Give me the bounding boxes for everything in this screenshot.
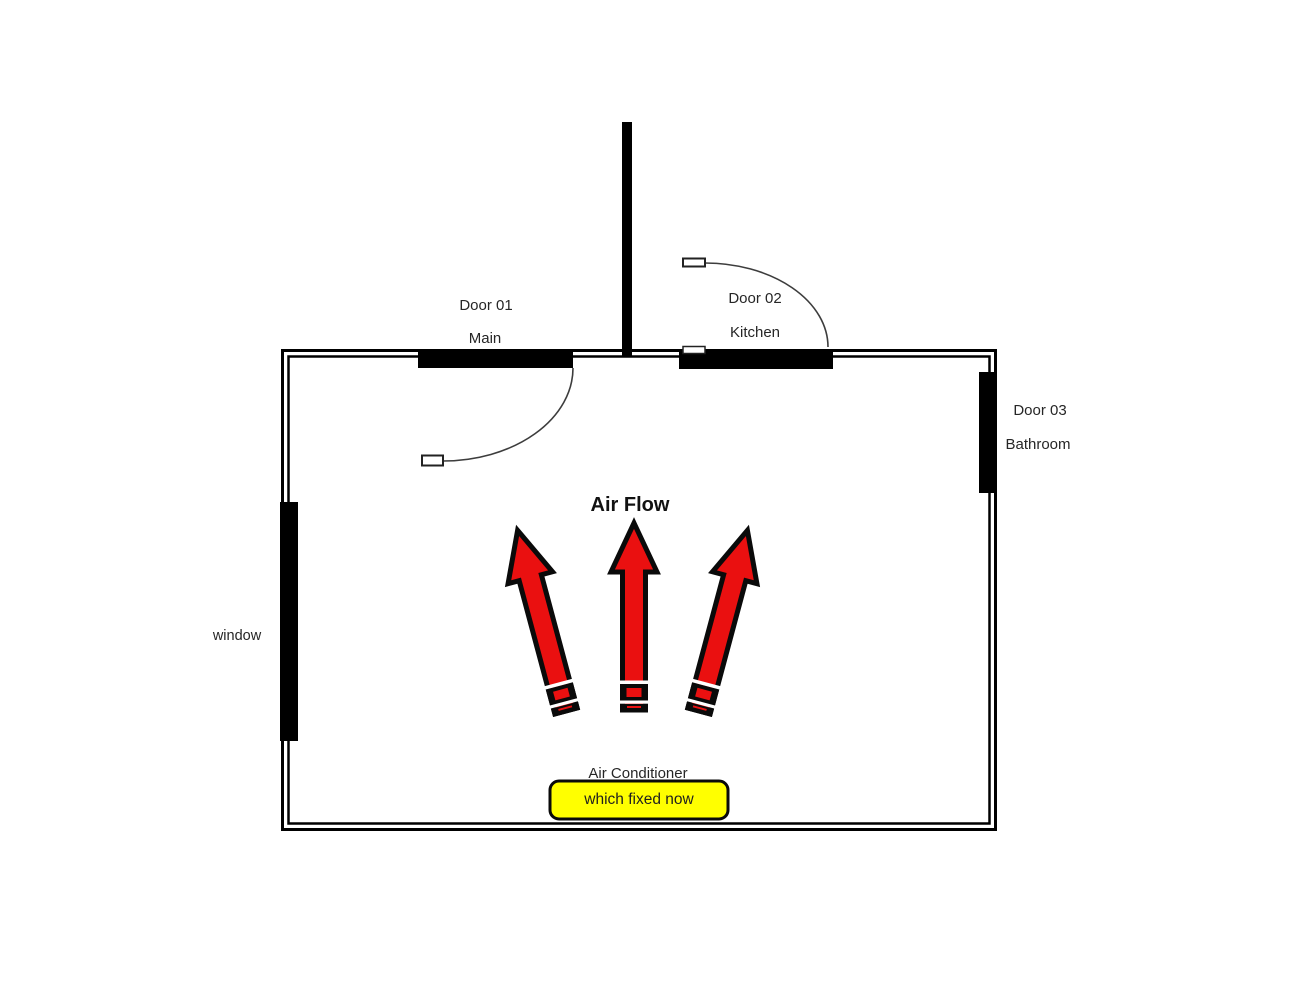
airflow-arrow-right xyxy=(676,524,769,719)
door-03-bar xyxy=(979,372,996,493)
door-01-label: Door 01 xyxy=(459,298,512,313)
door-03-label: Door 03 xyxy=(1013,403,1066,418)
highlight-note-label: which fixed now xyxy=(550,781,728,819)
door-02-label: Door 02 xyxy=(728,291,781,306)
door-02-leaf-closed xyxy=(683,347,705,354)
window-label: window xyxy=(213,629,261,644)
airflow-arrow-center xyxy=(611,523,657,713)
door-03-room-label: Bathroom xyxy=(1005,437,1070,452)
door-01-swing-arc xyxy=(443,368,573,461)
door-02-leaf xyxy=(683,259,705,267)
entry-wall-stub xyxy=(622,122,632,356)
door-01-bar xyxy=(418,350,573,368)
door-01-leaf xyxy=(422,456,443,466)
air-conditioner-label: Air Conditioner xyxy=(588,766,687,781)
airflow-arrow-left xyxy=(495,524,588,719)
door-01-room-label: Main xyxy=(469,331,502,346)
air-flow-title: Air Flow xyxy=(591,495,670,515)
door-02-room-label: Kitchen xyxy=(730,325,780,340)
window-bar xyxy=(280,502,298,741)
floor-plan-canvas: Door 01 Main Door 02 Kitchen Door 03 Bat… xyxy=(0,0,1294,1000)
